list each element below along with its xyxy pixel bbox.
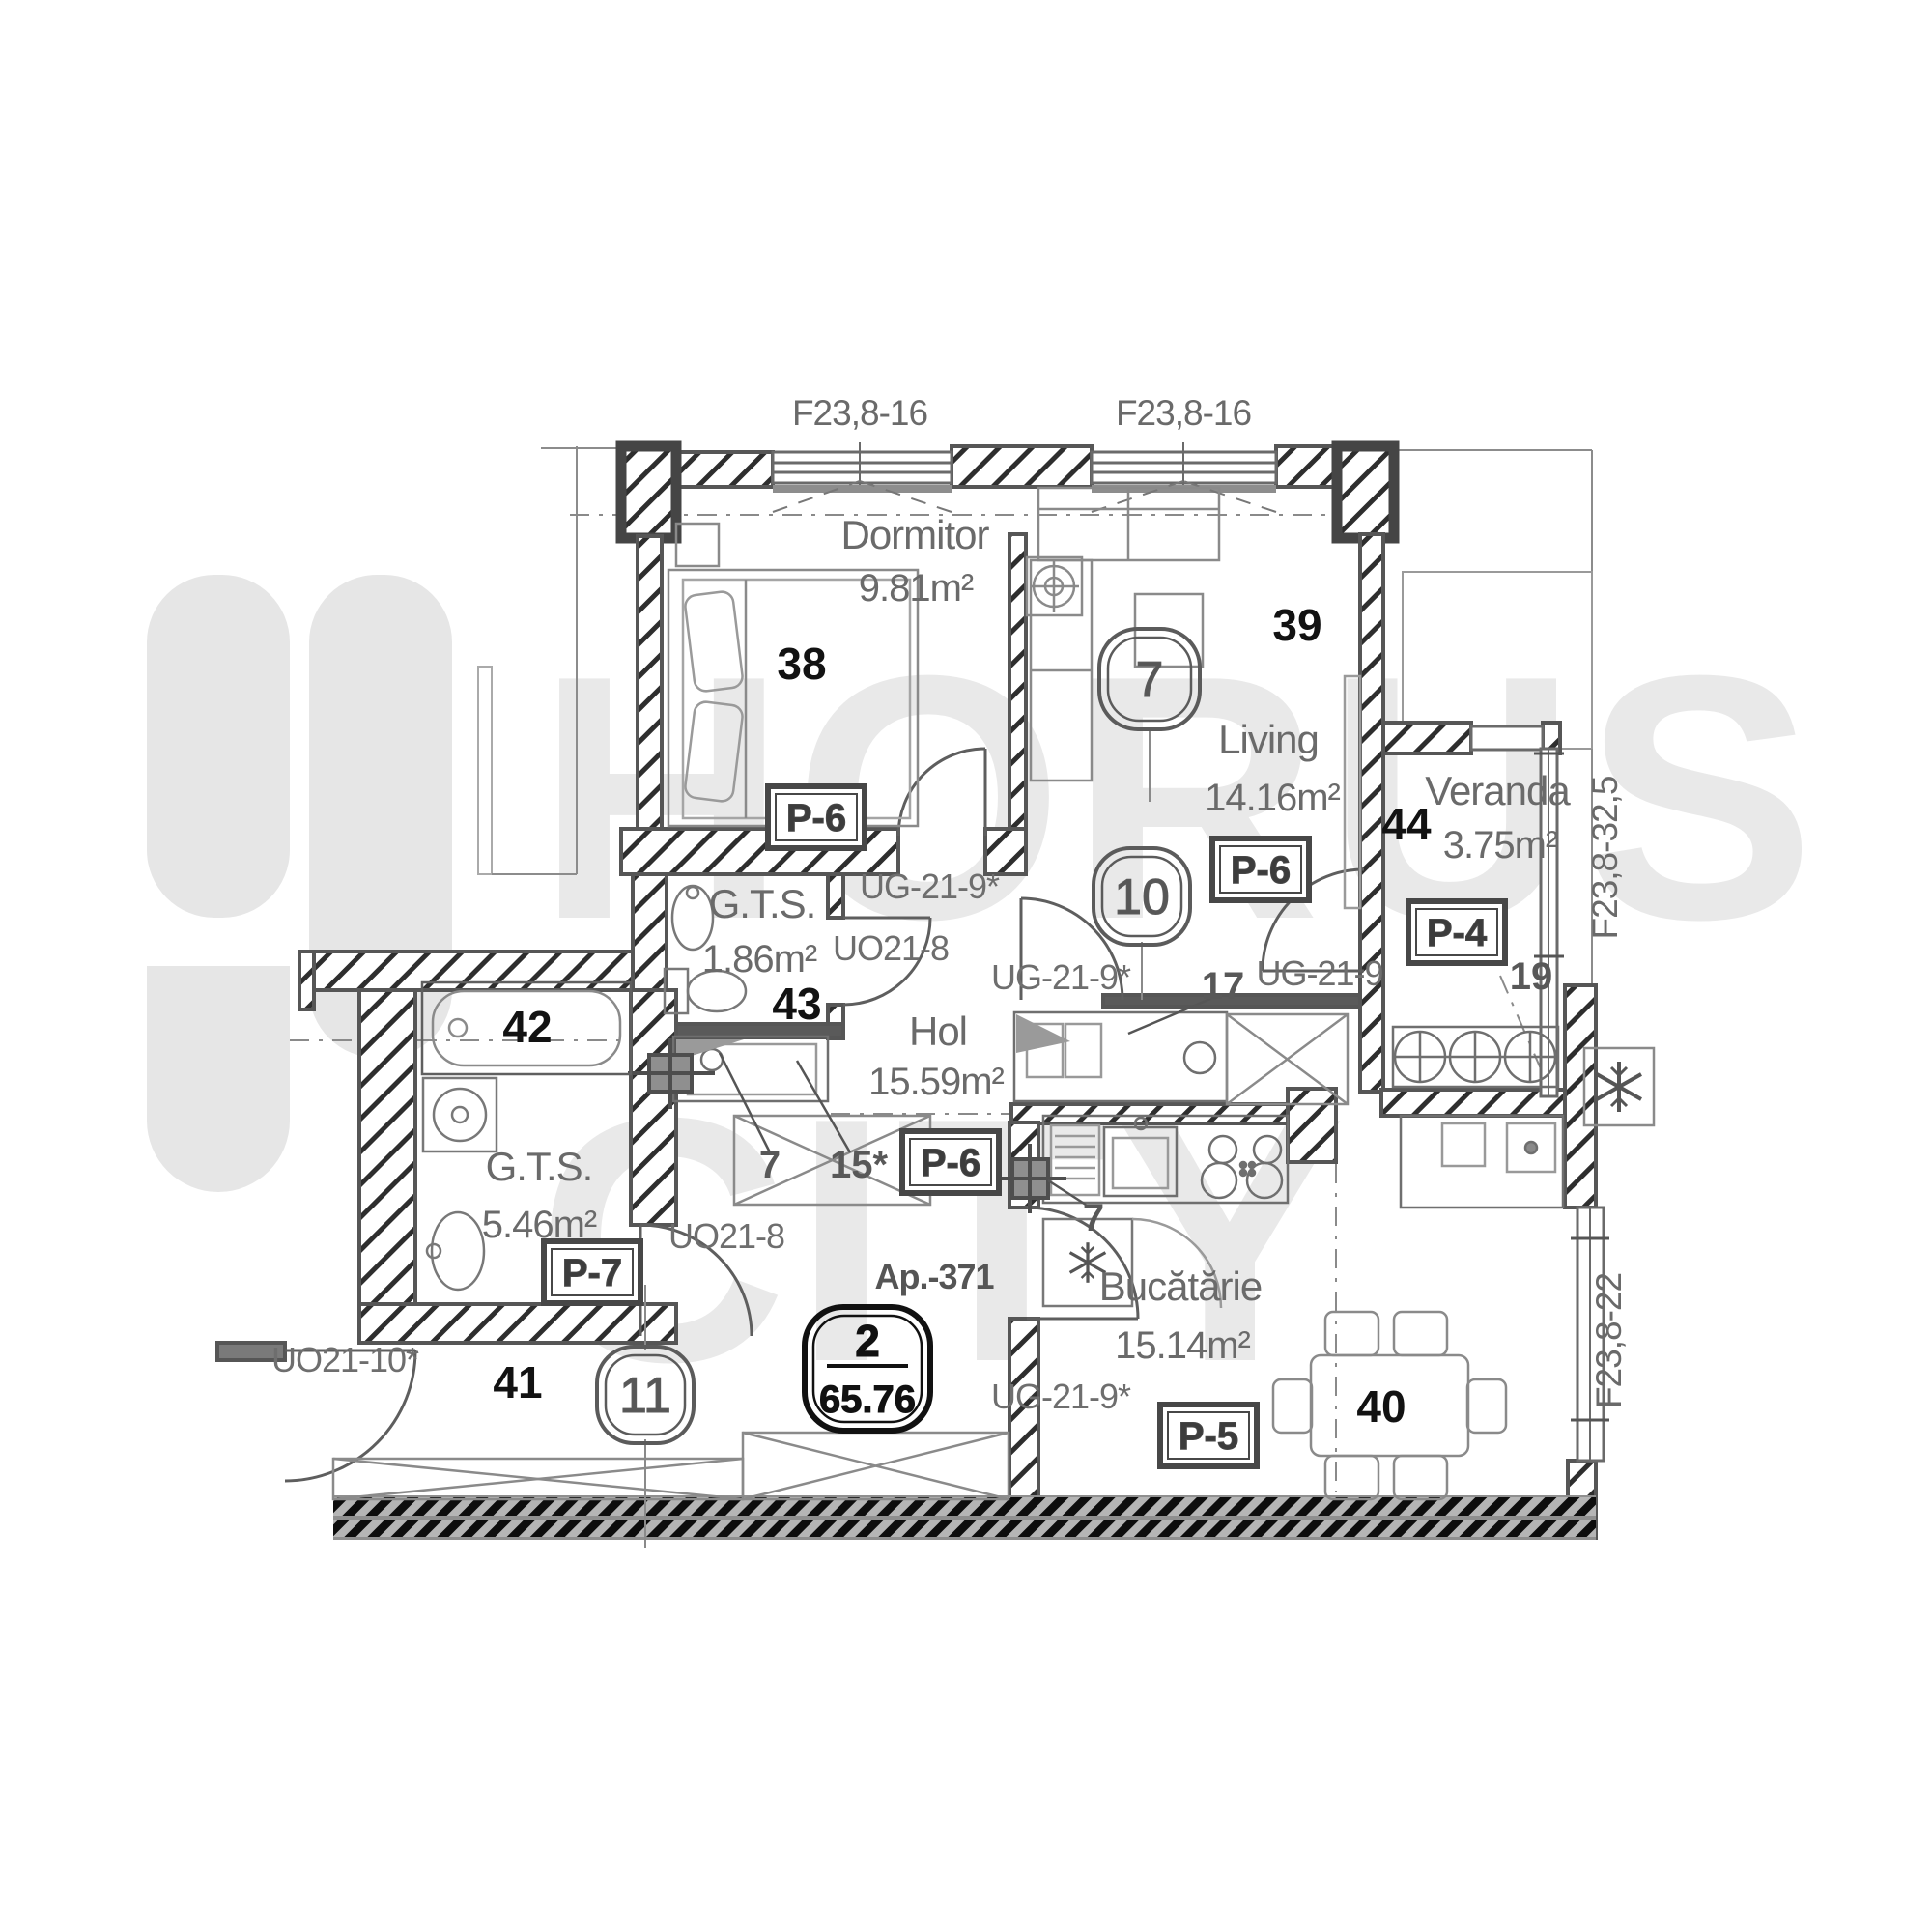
badge-p6-dormitor: P-6	[768, 786, 865, 848]
bath-name: G.T.S.	[486, 1144, 593, 1189]
hol-name: Hol	[909, 1009, 967, 1054]
badge-p5-kitchen: P-5	[1160, 1405, 1257, 1466]
gts-small-area: 1.86m²	[702, 938, 817, 980]
window-label-top-right: F23,8-16	[1116, 393, 1251, 433]
floor-plan-drawing: HORUS CITY	[0, 0, 1932, 1932]
dormitor-number: 38	[777, 639, 826, 689]
svg-text:65.76: 65.76	[819, 1378, 916, 1421]
svg-text:P-4: P-4	[1427, 912, 1488, 954]
door-label-veranda: UG-21-9	[1256, 953, 1382, 993]
door-label-gts-small: UO21-8	[833, 928, 949, 968]
kitchen-name: Bucătărie	[1099, 1264, 1262, 1309]
kitchen-area: 15.14m²	[1115, 1324, 1250, 1367]
svg-text:P-6: P-6	[786, 797, 846, 839]
hol-area: 15.59m²	[868, 1061, 1004, 1103]
bath-area: 5.46m²	[482, 1204, 597, 1246]
door-label-gts-big: UO21-8	[668, 1216, 784, 1256]
door-label-living: UG-21-9*	[991, 957, 1131, 997]
living-name: Living	[1218, 717, 1319, 762]
washbasin-big	[427, 1212, 484, 1290]
living-number: 39	[1272, 600, 1321, 650]
veranda-area: 3.75m²	[1443, 824, 1558, 867]
svg-text:10: 10	[1114, 869, 1170, 925]
veranda-planter	[1393, 1027, 1558, 1087]
gts-small-number: 43	[772, 979, 821, 1029]
window-top-left	[773, 452, 952, 483]
badge-p4-veranda: P-4	[1408, 901, 1505, 963]
window-veranda-top	[1471, 726, 1543, 750]
counter-number: 17	[1202, 965, 1245, 1008]
dormitor-name: Dormitor	[840, 512, 989, 557]
door-label-dormitor: UG-21-9*	[860, 867, 1000, 906]
veranda-item: 19	[1510, 955, 1553, 998]
badge-p6-hol: P-6	[902, 1131, 999, 1193]
hol-item-b: 15*	[830, 1144, 888, 1186]
svg-text:P-6: P-6	[1231, 849, 1291, 892]
dining-number: 40	[1356, 1381, 1406, 1432]
badge-p7-bath: P-7	[544, 1241, 640, 1303]
washing-machine	[423, 1078, 497, 1151]
svg-text:P-6: P-6	[921, 1142, 980, 1184]
window-label-veranda: F23,8-32,5	[1585, 776, 1625, 939]
kitchen-item: 7	[1083, 1197, 1104, 1239]
nightstand	[676, 524, 719, 566]
badge-p6-living: P-6	[1212, 838, 1309, 900]
bath-number: 42	[502, 1002, 552, 1052]
entry-number: 41	[493, 1357, 542, 1407]
svg-text:11: 11	[619, 1368, 671, 1424]
living-area: 14.16m²	[1205, 777, 1340, 819]
hol-item-a: 7	[759, 1144, 781, 1186]
window-label-top-left: F23,8-16	[792, 393, 927, 433]
floor-plan-canvas: HORUS CITY	[0, 0, 1932, 1932]
veranda-number: 44	[1381, 799, 1432, 849]
door-label-entry: UO21-10*	[271, 1340, 419, 1379]
bottom-exterior-wall	[333, 1495, 1596, 1540]
svg-text:2: 2	[855, 1316, 880, 1366]
door-label-kitchen: UG-21-9*	[991, 1377, 1131, 1416]
svg-text:P-7: P-7	[562, 1252, 622, 1294]
svg-text:P-5: P-5	[1179, 1415, 1238, 1458]
window-label-kitchen: F23,8-22	[1589, 1273, 1629, 1408]
apartment-label: Ap.-371	[874, 1257, 994, 1296]
gts-small-name: G.T.S.	[709, 881, 816, 926]
veranda-name: Veranda	[1425, 768, 1571, 813]
svg-text:7: 7	[1136, 652, 1164, 708]
dormitor-area: 9.81m²	[859, 567, 974, 610]
